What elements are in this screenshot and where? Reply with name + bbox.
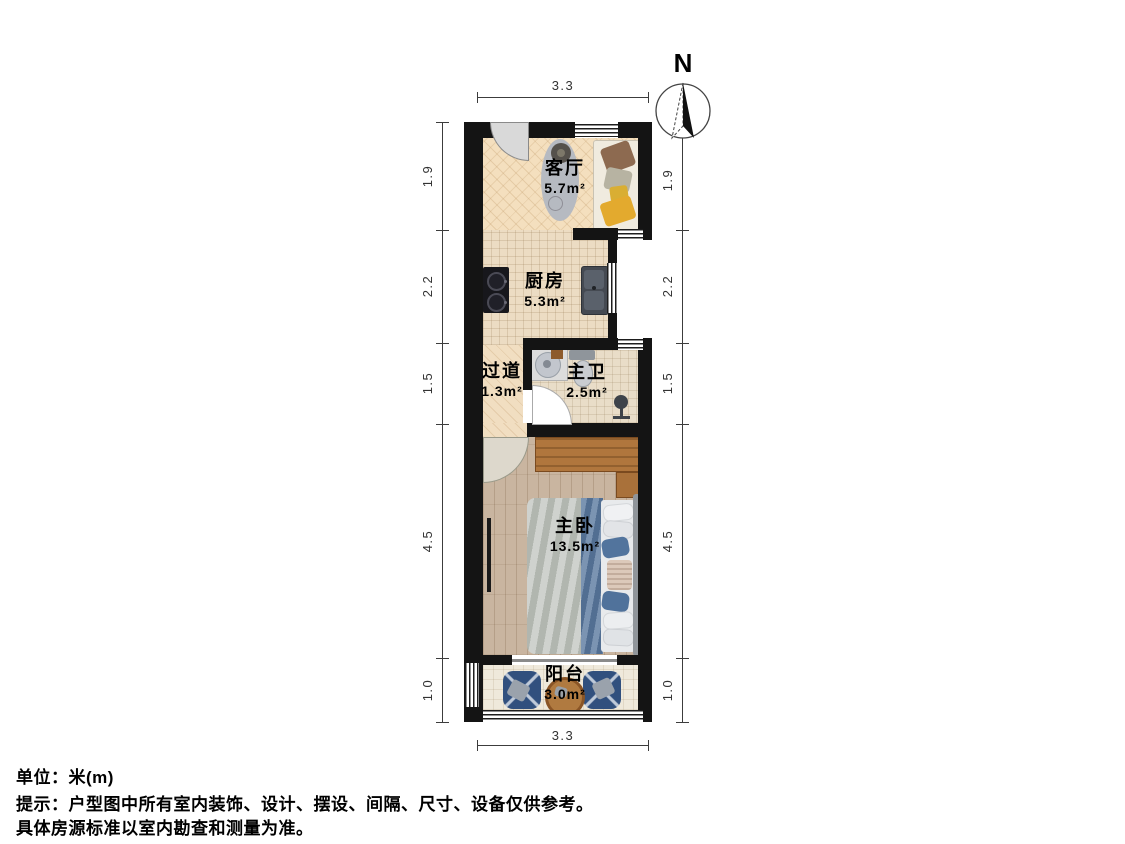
- dim-label-right: 1.0: [661, 670, 675, 710]
- hint-note-line2: 具体房源标准以室内勘查和测量为准。: [16, 814, 314, 839]
- dim-label-right: 2.2: [661, 266, 675, 306]
- bed-pillow: [602, 611, 634, 630]
- dim-label-top: 3.3: [533, 79, 593, 93]
- shower-drain-stem: [620, 408, 623, 416]
- window-balcony-south: [483, 710, 643, 722]
- wall-top-b: [528, 122, 575, 138]
- room-name: 过道: [482, 361, 522, 381]
- wall-bath-top: [523, 338, 618, 350]
- dim-tick: [477, 740, 478, 751]
- bed-pillow: [603, 628, 635, 647]
- wall-bath-top-corner: [643, 338, 652, 350]
- dim-label-right: 1.9: [661, 160, 675, 200]
- hallway-floor-strip: [483, 423, 527, 437]
- wall-bottom-right-corner: [643, 710, 652, 722]
- dim-label-right: 1.5: [661, 363, 675, 403]
- room-area: 1.3m²: [481, 383, 523, 400]
- dim-tick: [648, 740, 649, 751]
- dim-label-right: 4.5: [661, 521, 675, 561]
- dim-line-right: [682, 132, 683, 722]
- room-area: 3.0m²: [544, 686, 586, 703]
- north-label: N: [668, 48, 698, 79]
- dim-tick: [676, 658, 689, 659]
- wall-right-upper: [638, 138, 652, 240]
- room-label-bathroom: 主卫 2.5m²: [541, 362, 633, 401]
- dim-tick: [676, 424, 689, 425]
- dim-label-left: 1.9: [421, 156, 435, 196]
- shower-drain-base: [613, 416, 630, 419]
- room-label-bedroom: 主卧 13.5m²: [513, 516, 637, 555]
- dim-label-left: 1.5: [421, 363, 435, 403]
- dim-tick: [436, 230, 449, 231]
- soap-tray: [551, 350, 563, 359]
- dim-tick: [676, 343, 689, 344]
- room-label-hallway: 过道 1.3m²: [458, 361, 546, 400]
- room-label-balcony: 阳台 3.0m²: [513, 664, 617, 703]
- hint-note-line1: 提示：户型图中所有室内装饰、设计、摆设、间隔、尺寸、设备仅供参考。: [16, 790, 594, 815]
- dim-label-left: 4.5: [421, 521, 435, 561]
- room-name: 厨房: [525, 271, 565, 291]
- wall-left: [464, 122, 483, 722]
- room-name: 客厅: [545, 158, 585, 178]
- room-label-kitchen: 厨房 5.3m²: [493, 271, 597, 310]
- window-living-north: [575, 124, 618, 137]
- room-label-living: 客厅 5.7m²: [512, 158, 618, 197]
- room-area: 5.7m²: [544, 180, 586, 197]
- bed-pillow-blue: [601, 590, 630, 613]
- radiator: [487, 518, 491, 592]
- dim-line-top: [478, 97, 649, 98]
- window-kitchen-east: [607, 263, 618, 313]
- dim-tick: [436, 424, 449, 425]
- balcony-sliding-door: [512, 659, 617, 662]
- wardrobe: [535, 437, 640, 472]
- dim-line-bottom: [478, 745, 649, 746]
- bed-knit-blanket: [607, 560, 632, 590]
- dim-tick: [477, 92, 478, 103]
- floorplan-page: 客厅 5.7m² 厨房 5.3m² 过道 1.3m² 主卫 2.5m² 主卧 1…: [0, 0, 1125, 844]
- dim-tick: [648, 92, 649, 103]
- unit-note: 单位：米(m): [16, 763, 114, 788]
- dim-label-bottom: 3.3: [533, 729, 593, 743]
- wall-corner-ne: [643, 228, 652, 240]
- wall-bottom-left-corner: [464, 710, 483, 722]
- wall-balcony-right-seg: [617, 655, 652, 665]
- dim-tick: [436, 122, 449, 123]
- rug-swirl: [548, 196, 563, 211]
- room-name: 主卫: [567, 362, 607, 382]
- window-bath-north: [618, 339, 643, 350]
- room-area: 13.5m²: [550, 538, 600, 555]
- compass-icon: [654, 80, 712, 144]
- dim-label-left: 2.2: [421, 266, 435, 306]
- window-balcony-west: [465, 663, 479, 707]
- plant-detail: [557, 149, 565, 157]
- dim-tick: [436, 722, 449, 723]
- wall-top-c: [618, 122, 652, 138]
- wall-right-lower: [638, 350, 652, 722]
- toilet-tank: [569, 350, 595, 360]
- dim-label-left: 1.0: [421, 670, 435, 710]
- window-living-south: [618, 229, 643, 240]
- room-area: 2.5m²: [566, 384, 608, 401]
- dim-tick: [436, 658, 449, 659]
- room-name: 主卧: [555, 516, 595, 536]
- dim-tick: [436, 343, 449, 344]
- room-area: 5.3m²: [524, 293, 566, 310]
- dim-tick: [676, 722, 689, 723]
- wall-living-kitchen: [573, 228, 618, 240]
- wall-bedroom-top: [527, 423, 652, 437]
- dim-line-left: [442, 122, 443, 722]
- dim-tick: [676, 230, 689, 231]
- room-name: 阳台: [545, 664, 585, 684]
